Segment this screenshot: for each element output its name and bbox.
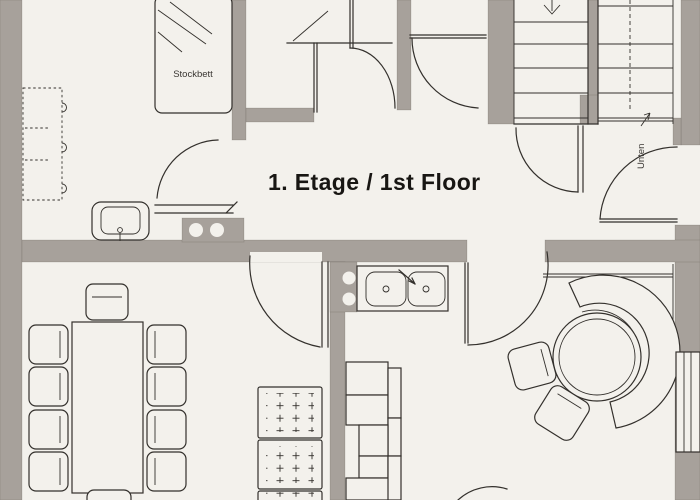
wall-left-band	[0, 0, 22, 500]
wall-central-east	[545, 240, 700, 262]
bunk-bed: Stockbett	[155, 0, 232, 113]
wall-central-west	[22, 240, 467, 262]
chair	[87, 490, 131, 500]
wall-bedroom2-east	[397, 0, 411, 110]
bunk-bed-label: Stockbett	[173, 69, 213, 80]
round-table	[553, 313, 641, 401]
chair	[29, 325, 68, 364]
floor-plan-scan: Stockbett	[0, 0, 700, 500]
floor-plan-drawing: Stockbett	[0, 0, 700, 500]
radiator	[676, 352, 700, 452]
chair	[147, 410, 186, 449]
chair	[147, 452, 186, 491]
door-opening-dining	[250, 252, 322, 262]
dining-table	[72, 322, 143, 493]
washbasin	[92, 202, 149, 241]
stairs-divider-foot	[580, 95, 598, 124]
floor-title: 1. Etage / 1st Floor	[268, 169, 481, 195]
hotplate-icon	[343, 272, 356, 285]
stairs-divider	[588, 0, 598, 96]
sofa	[258, 387, 322, 500]
wall-landing-notch	[673, 118, 681, 145]
chair	[29, 452, 68, 491]
wall-right-band-top	[681, 0, 700, 145]
wall-kitchen-corner	[330, 262, 357, 312]
hotplate-icon	[210, 223, 224, 237]
hotplate-icon	[343, 293, 356, 306]
wall-bedroom1-east	[232, 0, 246, 140]
chair	[147, 325, 186, 364]
chair	[29, 367, 68, 406]
kitchen-sink	[357, 266, 448, 311]
wall-stairhall-west	[488, 0, 514, 124]
stairs-direction-label: Unten	[636, 144, 647, 169]
hotplate-icon	[189, 223, 203, 237]
wall-bedroom2-south	[246, 108, 314, 122]
chair	[86, 284, 128, 320]
chair	[147, 367, 186, 406]
chair	[29, 410, 68, 449]
